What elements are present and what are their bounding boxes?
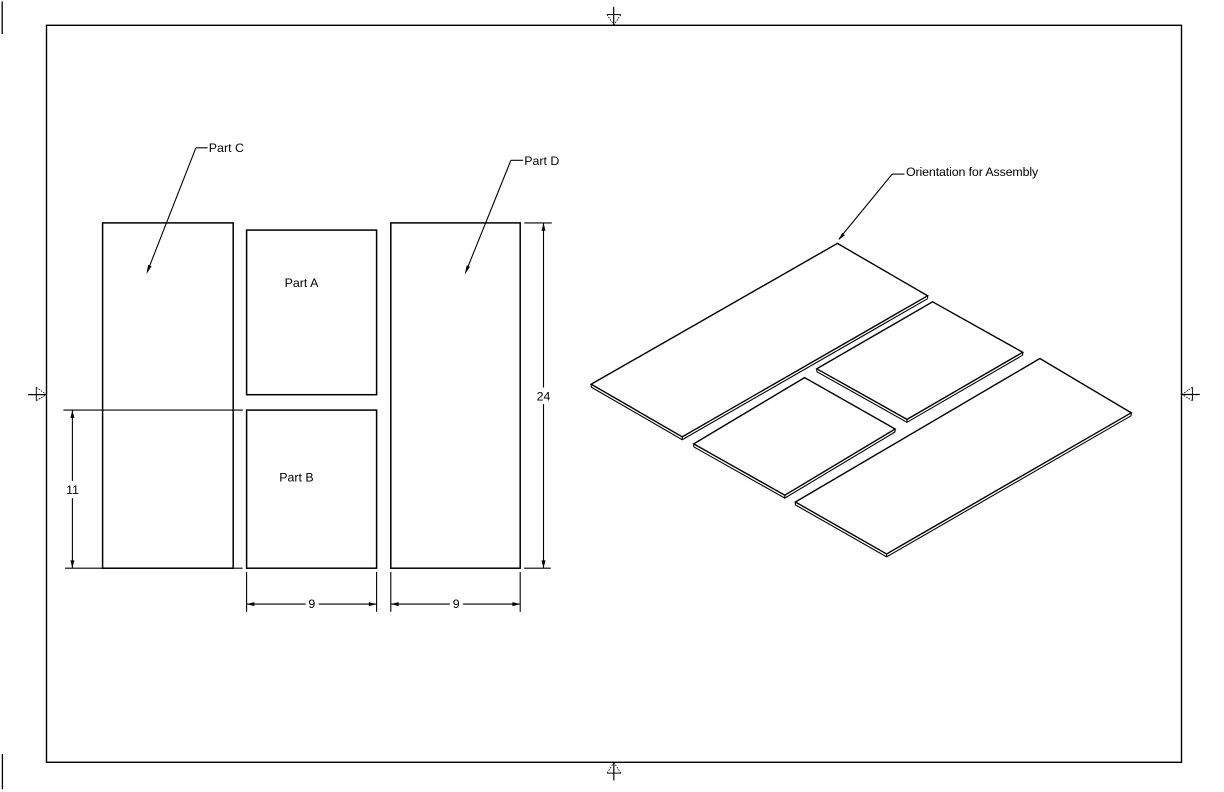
svg-text:9: 9 [308,597,315,611]
svg-text:9: 9 [453,597,460,611]
svg-text:Part C: Part C [209,141,244,155]
svg-text:11: 11 [66,483,79,497]
svg-text:Orientation for Assembly: Orientation for Assembly [906,165,1039,179]
svg-text:Part A: Part A [285,276,319,290]
svg-text:24: 24 [537,389,551,403]
svg-text:Part B: Part B [279,471,313,485]
svg-text:Part D: Part D [524,154,559,168]
